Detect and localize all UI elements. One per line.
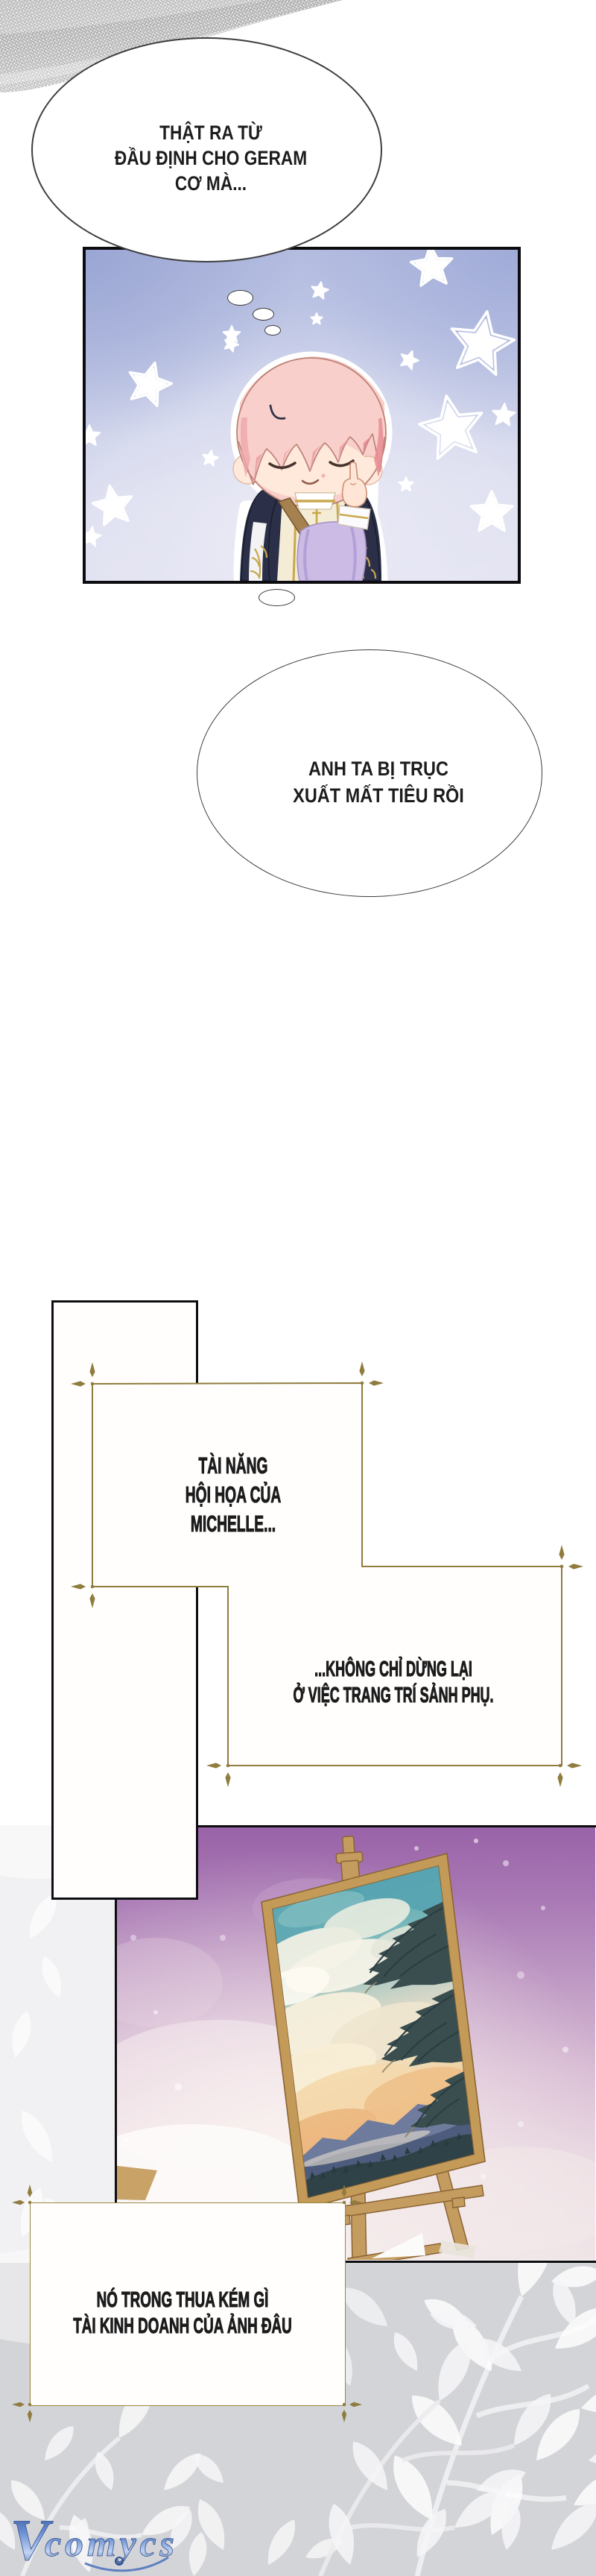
svg-text:comycs: comycs bbox=[45, 2522, 174, 2564]
